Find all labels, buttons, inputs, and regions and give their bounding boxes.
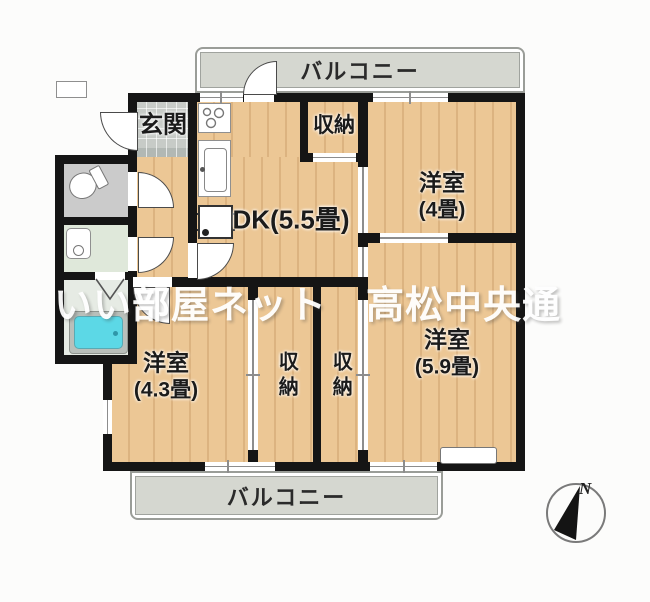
- wall-toilet-washroom: [55, 217, 137, 225]
- closet-top-sliding-door: [313, 153, 356, 162]
- closet-right-label: 収納: [329, 351, 351, 401]
- western-room-4-name: 洋室: [419, 169, 465, 195]
- western-room-59-name: 洋室: [424, 326, 470, 352]
- western-room-43-name: 洋室: [143, 349, 189, 375]
- dk-room4-sliding-door: [358, 167, 368, 233]
- closet-top-label: 収納: [313, 114, 355, 138]
- washroom-door-gap: [128, 237, 137, 271]
- balcony-bottom-label: バルコニー: [227, 480, 347, 512]
- stove-icon: [198, 103, 231, 133]
- western-room-59-size: (5.9畳): [415, 355, 479, 378]
- window-room4-top: [373, 93, 448, 102]
- western-room-43-size: (4.3畳): [134, 378, 198, 401]
- compass: N: [545, 478, 611, 546]
- room4-room59-sliding-door: [380, 233, 448, 243]
- balcony-bottom-floor: バルコニー: [135, 476, 438, 515]
- western-room-43-label: 洋室 (4.3畳): [134, 350, 198, 402]
- bay-window-room59: [440, 447, 497, 464]
- closet-left-label: 収納: [275, 351, 297, 401]
- wall-sanitary-left: [55, 155, 64, 364]
- window-kitchen-top: [200, 93, 243, 102]
- meter-box: [56, 81, 87, 98]
- balcony-bottom: バルコニー: [130, 471, 443, 520]
- western-room-59-label: 洋室 (5.9畳): [415, 327, 479, 379]
- toilet-door-gap: [128, 172, 137, 206]
- western-room-4-size: (4畳): [419, 198, 466, 221]
- compass-n-label: N: [578, 479, 592, 498]
- wall-closet-top-left: [300, 93, 308, 162]
- wall-bathroom-bottom: [55, 355, 137, 364]
- wall-kitchen-entrance: [188, 93, 197, 243]
- entrance-label: 玄関: [139, 113, 187, 140]
- compass-needle: [554, 486, 580, 540]
- watermark-text: いい部屋ネット 高松中央通: [54, 274, 614, 329]
- sink-icon: [198, 140, 231, 197]
- dk-room59-door-gap: [358, 247, 368, 277]
- floor-plan: バルコニー バルコニー: [0, 0, 650, 602]
- western-room-4-label: 洋室 (4畳): [419, 170, 466, 222]
- washbasin-icon: [66, 228, 91, 259]
- window-room59-bottom: [370, 462, 437, 471]
- entrance-door-arc: [100, 112, 138, 151]
- balcony-top-label: バルコニー: [300, 54, 420, 86]
- hall-dk-door-gap: [188, 243, 197, 278]
- dk-label: DK(5.5畳): [232, 205, 349, 234]
- wall-sanitary-top: [55, 155, 137, 164]
- entrance-step: [137, 148, 188, 157]
- window-room43-left: [103, 400, 112, 434]
- window-room43-bottom: [205, 462, 275, 471]
- dining-table-icon: [198, 205, 233, 239]
